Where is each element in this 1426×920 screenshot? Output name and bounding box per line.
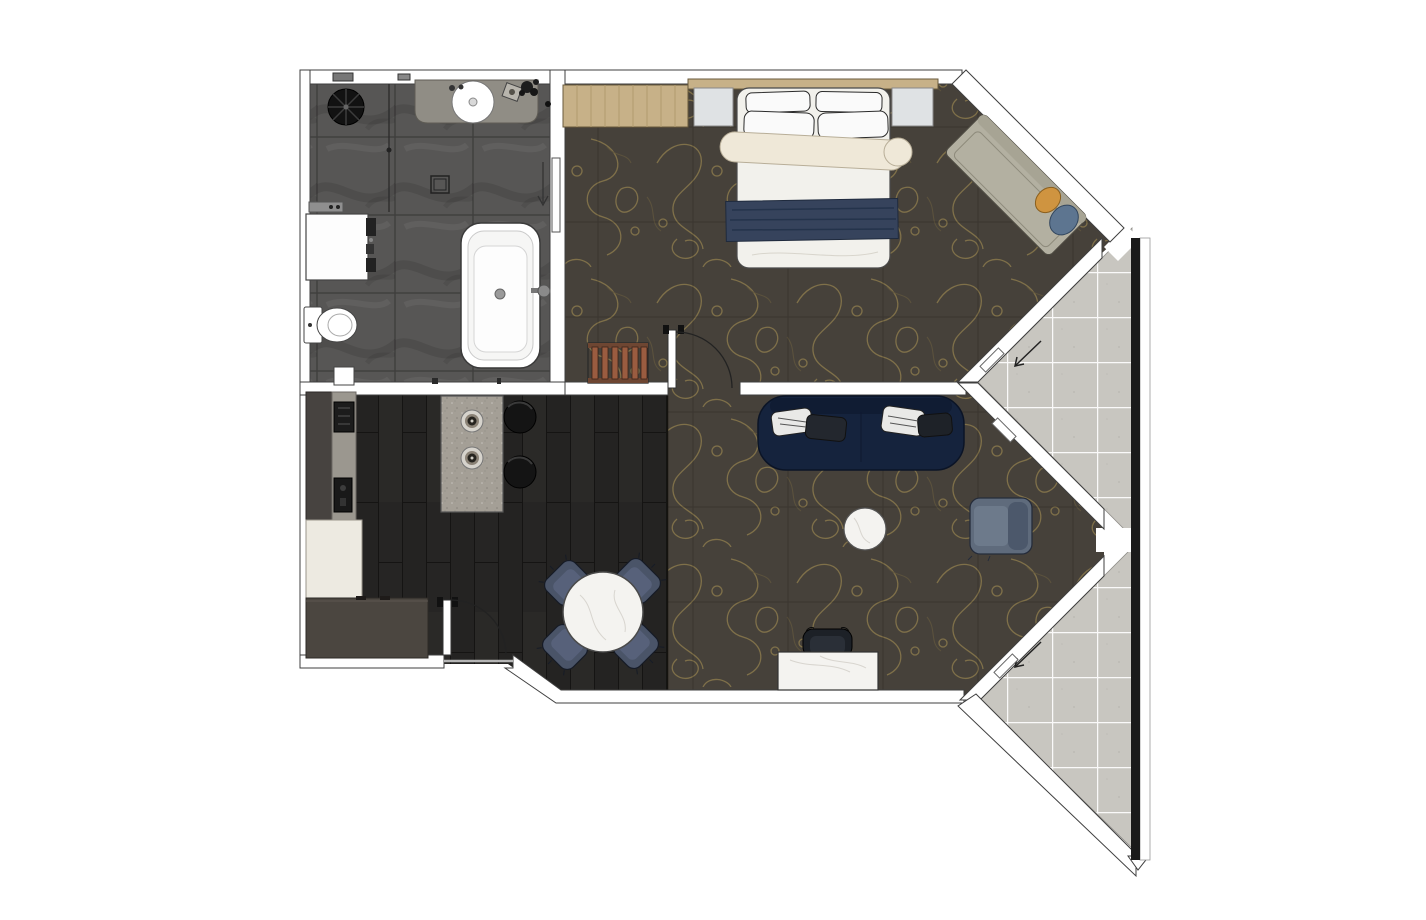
armchair-back — [1008, 502, 1028, 550]
faucet-base — [449, 85, 455, 91]
double-bed[interactable] — [719, 88, 912, 268]
floor-plan — [0, 0, 1426, 920]
tub-faucet-knob — [538, 285, 550, 297]
wall-right-dark-strip — [1131, 238, 1140, 860]
door-stop-2 — [497, 378, 501, 384]
nightstand-right[interactable] — [892, 88, 933, 126]
bath-bin[interactable] — [334, 367, 354, 385]
bar-stool-2[interactable] — [504, 456, 536, 488]
island-burner-2 — [461, 447, 483, 469]
wall-counter-back — [306, 392, 332, 520]
glass-partition-knob — [387, 148, 392, 153]
basin-drain — [469, 98, 477, 106]
door-handle — [663, 325, 669, 334]
faucet-spout — [459, 85, 464, 90]
shelf-item-2 — [336, 205, 340, 209]
door-stop — [432, 378, 438, 384]
desk[interactable] — [778, 652, 878, 690]
nightstand-left[interactable] — [694, 88, 733, 126]
armchair-seat — [974, 506, 1008, 546]
shower-control[interactable] — [333, 73, 353, 81]
wardrobe[interactable] — [563, 85, 688, 127]
kitchen-island[interactable] — [441, 396, 503, 512]
tub-drain — [495, 289, 505, 299]
island-burner-1 — [461, 410, 483, 432]
entry-door-handle — [437, 597, 443, 607]
rain-shower[interactable] — [328, 89, 364, 125]
wall-right-outer — [1140, 238, 1150, 860]
cooktop-appliance[interactable] — [334, 402, 354, 432]
coffee-table[interactable] — [844, 508, 886, 550]
tall-cabinet[interactable] — [306, 520, 362, 598]
armchair[interactable] — [968, 498, 1032, 561]
entry-door-leaf[interactable] — [443, 600, 451, 655]
entry-closet[interactable] — [306, 596, 428, 658]
bar-stool-1[interactable] — [504, 401, 536, 433]
mid-entry-gap — [1096, 528, 1134, 552]
bedroom-door-leaf[interactable] — [668, 330, 676, 388]
wall-bedroom-living-left — [565, 382, 668, 395]
sofa[interactable] — [758, 396, 964, 470]
bath-sliding-door[interactable] — [552, 158, 560, 232]
wall-bedroom-living-right — [740, 382, 966, 395]
towel-hook — [545, 101, 551, 107]
dining-table[interactable] — [563, 572, 643, 652]
floor-plan-canvas — [0, 0, 1426, 920]
shower-valve[interactable] — [398, 74, 410, 80]
shelf-item — [329, 205, 333, 209]
storage-unit[interactable] — [306, 214, 376, 280]
navy-throw — [726, 199, 899, 242]
counter-sink[interactable] — [334, 478, 352, 512]
entry-door-handle-2 — [452, 597, 458, 607]
toilet[interactable] — [304, 307, 357, 343]
bathtub[interactable] — [461, 223, 550, 368]
